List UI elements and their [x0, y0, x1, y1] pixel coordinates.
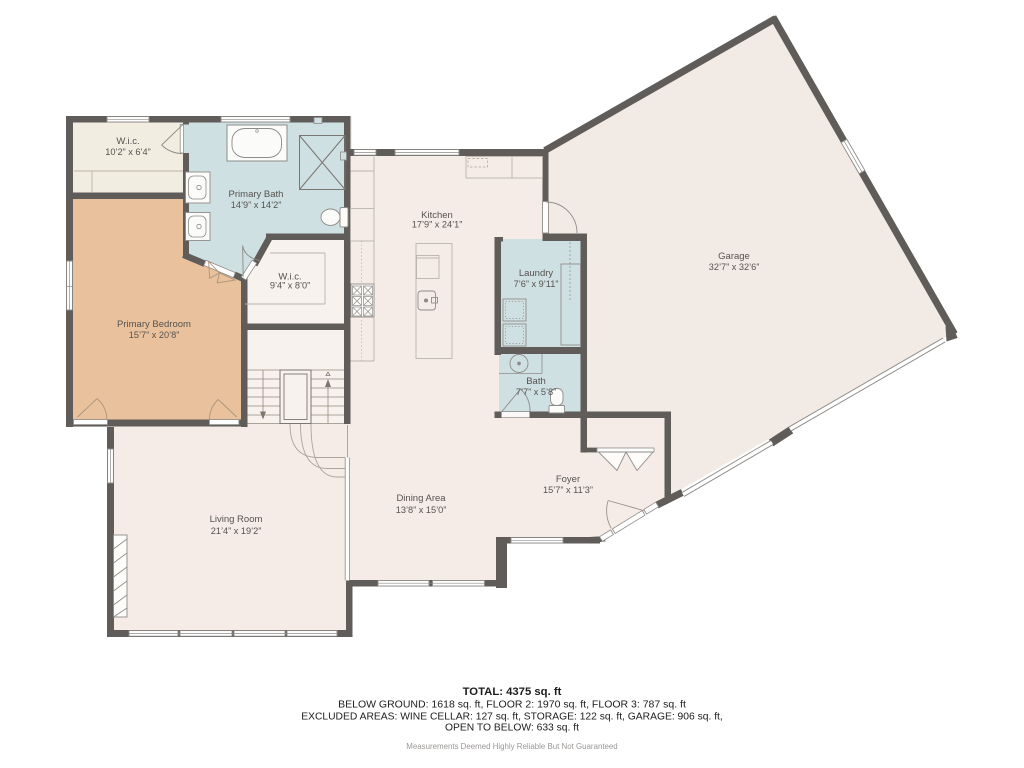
svg-text:Foyer: Foyer — [556, 474, 580, 485]
svg-text:OPEN TO BELOW: 633 sq. ft: OPEN TO BELOW: 633 sq. ft — [445, 723, 579, 734]
svg-text:Bath: Bath — [526, 376, 546, 387]
svg-text:9’4” x 8’0”: 9’4” x 8’0” — [270, 281, 310, 291]
svg-text:Laundry: Laundry — [519, 268, 554, 279]
svg-text:15’7” x 20’8”: 15’7” x 20’8” — [129, 330, 180, 340]
svg-text:21’4” x 19’2”: 21’4” x 19’2” — [211, 526, 262, 536]
svg-text:Living Room: Living Room — [210, 514, 263, 525]
svg-text:EXCLUDED AREAS: WINE CELLAR: 1: EXCLUDED AREAS: WINE CELLAR: 127 sq. ft,… — [301, 712, 723, 723]
svg-text:32’7” x 32’6”: 32’7” x 32’6” — [709, 262, 760, 272]
svg-text:7’7” x 5’8”: 7’7” x 5’8” — [516, 387, 556, 397]
svg-text:TOTAL: 4375 sq. ft: TOTAL: 4375 sq. ft — [463, 686, 562, 698]
svg-text:Primary Bath: Primary Bath — [229, 189, 284, 200]
svg-text:15’7” x 11’3”: 15’7” x 11’3” — [543, 485, 593, 495]
svg-text:14’9” x 14’2”: 14’9” x 14’2” — [231, 200, 282, 210]
svg-text:10’2” x 6’4”: 10’2” x 6’4” — [105, 147, 150, 157]
svg-text:Dining Area: Dining Area — [396, 493, 446, 504]
svg-text:BELOW GROUND: 1618 sq. ft, FLO: BELOW GROUND: 1618 sq. ft, FLOOR 2: 1970… — [338, 699, 686, 711]
svg-text:Primary Bedroom: Primary Bedroom — [117, 319, 191, 330]
svg-text:Garage: Garage — [718, 251, 750, 262]
svg-text:W.i.c.: W.i.c. — [116, 136, 139, 147]
svg-text:17’9” x 24’1”: 17’9” x 24’1” — [412, 220, 463, 230]
svg-text:Measurements Deemed Highly Rel: Measurements Deemed Highly Reliable But … — [406, 742, 617, 751]
svg-text:7’6” x 9’11”: 7’6” x 9’11” — [514, 279, 559, 289]
svg-text:13’8” x 15’0”: 13’8” x 15’0” — [396, 505, 447, 515]
